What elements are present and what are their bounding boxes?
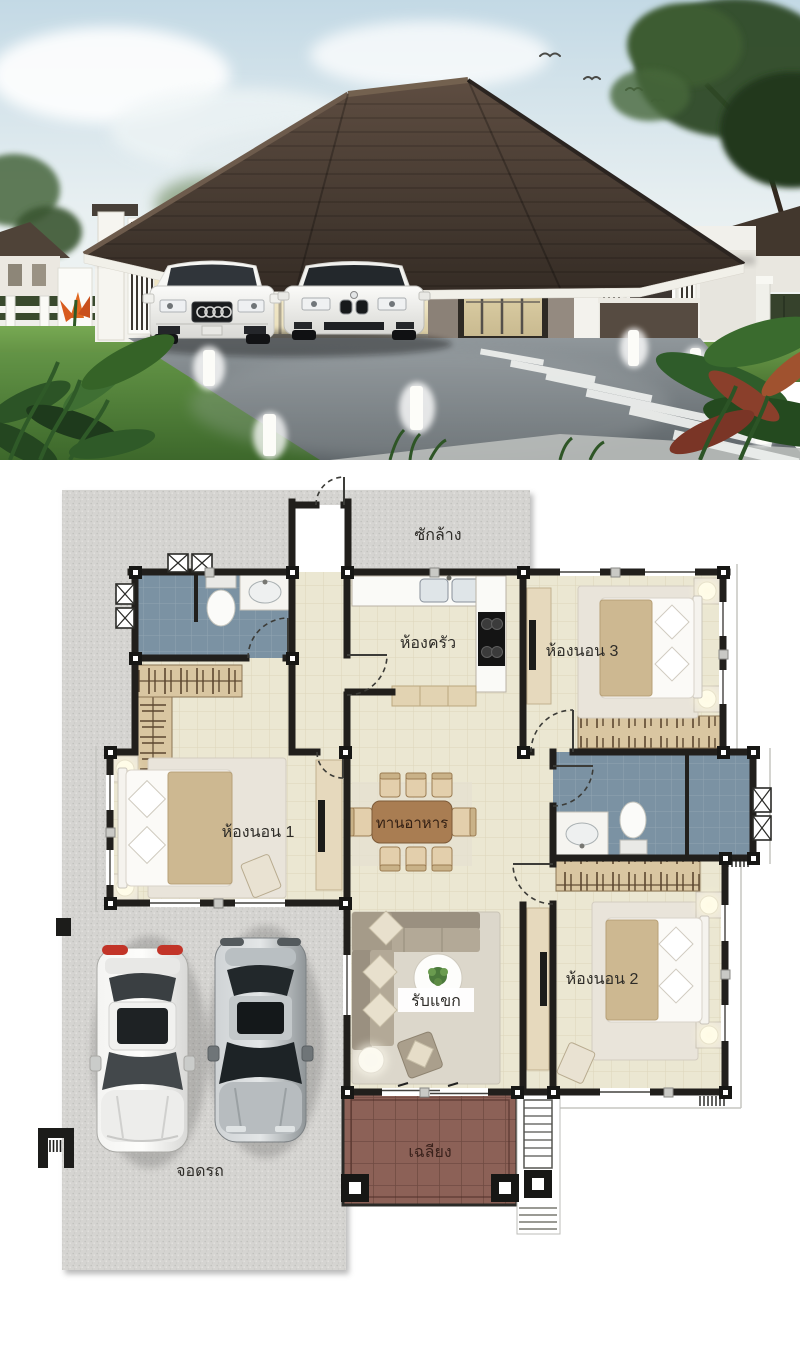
toilet [620,802,646,838]
car-silver-top [208,938,313,1142]
car-white-top [90,945,195,1152]
tv [318,800,325,852]
label-bedroom1: ห้องนอน 1 [222,823,295,841]
label-bedroom3: ห้องนอน 3 [546,642,619,660]
sunroof [117,1008,168,1044]
taillight [102,945,128,955]
mirror [90,1056,101,1071]
floor-plan-canvas: ซักล้าง ห้องครัว ห้องนอน 3 ห้องนอน 1 ทาน… [0,460,800,1350]
floor-plan: ซักล้าง ห้องครัว ห้องนอน 3 ห้องนอน 1 ทาน… [0,460,800,1350]
tv [540,952,547,1006]
toilet-tank [620,840,647,854]
mirror [302,1046,313,1061]
kitchen-sink [420,579,448,602]
walkway [517,1092,560,1234]
wardrobe-bedroom1 [138,665,242,697]
mirror [208,1046,219,1061]
car-grille [192,302,232,322]
sofa-back-left [352,950,372,1050]
taillight [157,945,183,955]
blanket [606,920,658,1020]
yard-post [56,918,71,936]
label-porch: เฉลียง [408,1143,451,1161]
exterior-render-canvas [0,0,800,460]
label-bedroom2: ห้องนอน 2 [566,970,639,988]
tv [529,620,536,670]
mirror [184,1056,195,1071]
wardrobe-bedroom2 [556,860,700,891]
label-dining: ทานอาหาร [376,815,448,832]
sink-basin [566,823,598,845]
rear-nook-floor [292,505,348,572]
label-kitchen: ห้องครัว [400,634,456,652]
toilet [207,590,235,626]
house-design-sheet: ซักล้าง ห้องครัว ห้องนอน 3 ห้องนอน 1 ทาน… [0,0,800,1350]
label-parking: จอดรถ [176,1163,224,1180]
kitchen-cabinet [392,686,476,706]
exterior-render [0,0,800,460]
wardrobe-bedroom3 [578,716,720,748]
label-living: รับแขก [411,993,461,1010]
label-laundry: ซักล้าง [414,526,461,544]
sunroof [237,1002,284,1034]
